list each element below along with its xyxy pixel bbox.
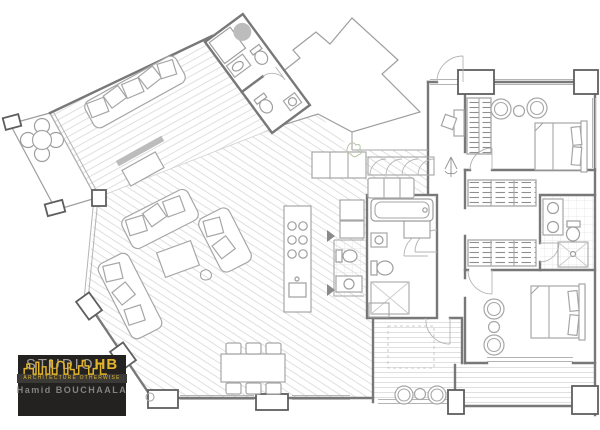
- tub-drain: [423, 208, 427, 212]
- bedroom2-door: [468, 270, 492, 294]
- wardrobe-row: [468, 180, 536, 206]
- basin: [548, 222, 559, 233]
- powder-toilet-tank: [336, 250, 342, 262]
- column: [92, 190, 106, 206]
- bed: [535, 121, 587, 172]
- bedroom2: [484, 284, 585, 355]
- toilet: [567, 227, 580, 241]
- column: [448, 390, 464, 414]
- island-faucet: [295, 277, 299, 281]
- logo-author: Hamid BOUCHAALA: [17, 385, 128, 396]
- pillow: [571, 147, 582, 166]
- north-arrow-icon: [445, 157, 457, 177]
- logo-tagline: ARCHITECTURE OTHERWISE: [17, 374, 126, 383]
- hall-bench: [368, 178, 414, 198]
- lounge-chairs: [491, 98, 547, 119]
- column: [574, 70, 598, 94]
- column: [256, 394, 288, 410]
- headboard: [579, 284, 585, 340]
- toilet-tank: [371, 261, 377, 275]
- headboard: [581, 121, 587, 172]
- dining-set: [221, 343, 285, 394]
- bedroom1: [467, 98, 587, 172]
- kitchen-island: [284, 206, 311, 312]
- wardrobe-row: [468, 240, 536, 266]
- bedroom2-window: [487, 358, 573, 362]
- bath-sink: [375, 236, 383, 244]
- island-sink: [289, 283, 306, 297]
- pillow: [571, 127, 582, 146]
- toilet-tank: [567, 221, 580, 227]
- floorplan-page: STUDIOHB ARCHITECTURE OTHERWISE Hamid BO…: [0, 0, 600, 430]
- lounge-chairs: [484, 299, 504, 355]
- basin: [548, 203, 559, 214]
- study-nook: [441, 110, 464, 136]
- terrace-column: [45, 200, 65, 216]
- kitchen-cabinets: [312, 152, 366, 178]
- bed: [531, 284, 585, 340]
- dressing-room: [468, 180, 536, 266]
- powder-sink: [344, 279, 354, 289]
- pillow: [568, 291, 579, 312]
- hall-wall: [352, 132, 428, 150]
- kitchen-tall-unit: [340, 200, 364, 220]
- toilet: [377, 261, 393, 275]
- studio-logo: STUDIOHB ARCHITECTURE OTHERWISE Hamid BO…: [18, 355, 126, 416]
- column: [148, 390, 178, 408]
- column: [572, 386, 598, 414]
- pillow: [568, 315, 579, 336]
- powder-toilet: [343, 250, 357, 262]
- kitchen-tall-unit: [340, 221, 364, 238]
- logo-skyline-icon: [18, 355, 114, 375]
